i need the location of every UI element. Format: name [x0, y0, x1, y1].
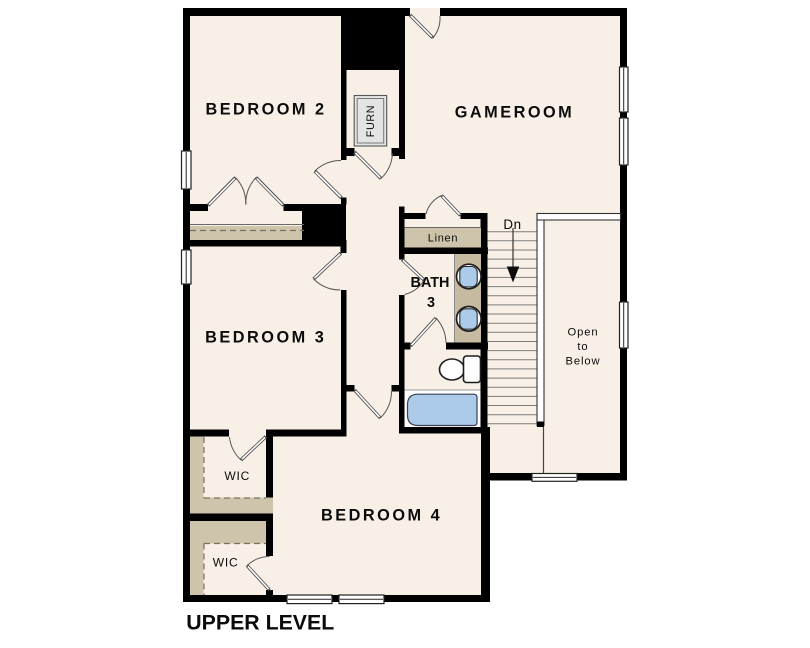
svg-text:FURN: FURN	[365, 105, 377, 137]
svg-text:BEDROOM 3: BEDROOM 3	[205, 329, 326, 347]
svg-text:Linen: Linen	[428, 232, 458, 244]
svg-text:Dn: Dn	[503, 217, 521, 232]
svg-text:WIC: WIC	[213, 556, 239, 570]
svg-text:BEDROOM 2: BEDROOM 2	[205, 101, 326, 119]
svg-text:Below: Below	[566, 356, 601, 368]
svg-text:Open: Open	[568, 327, 599, 339]
svg-text:WIC: WIC	[224, 469, 250, 483]
svg-text:to: to	[577, 341, 588, 353]
svg-text:BEDROOM 4: BEDROOM 4	[321, 507, 442, 525]
svg-text:BATH: BATH	[411, 275, 450, 291]
svg-text:UPPER LEVEL: UPPER LEVEL	[186, 611, 334, 635]
svg-text:3: 3	[427, 295, 435, 311]
svg-text:GAMEROOM: GAMEROOM	[455, 104, 575, 122]
